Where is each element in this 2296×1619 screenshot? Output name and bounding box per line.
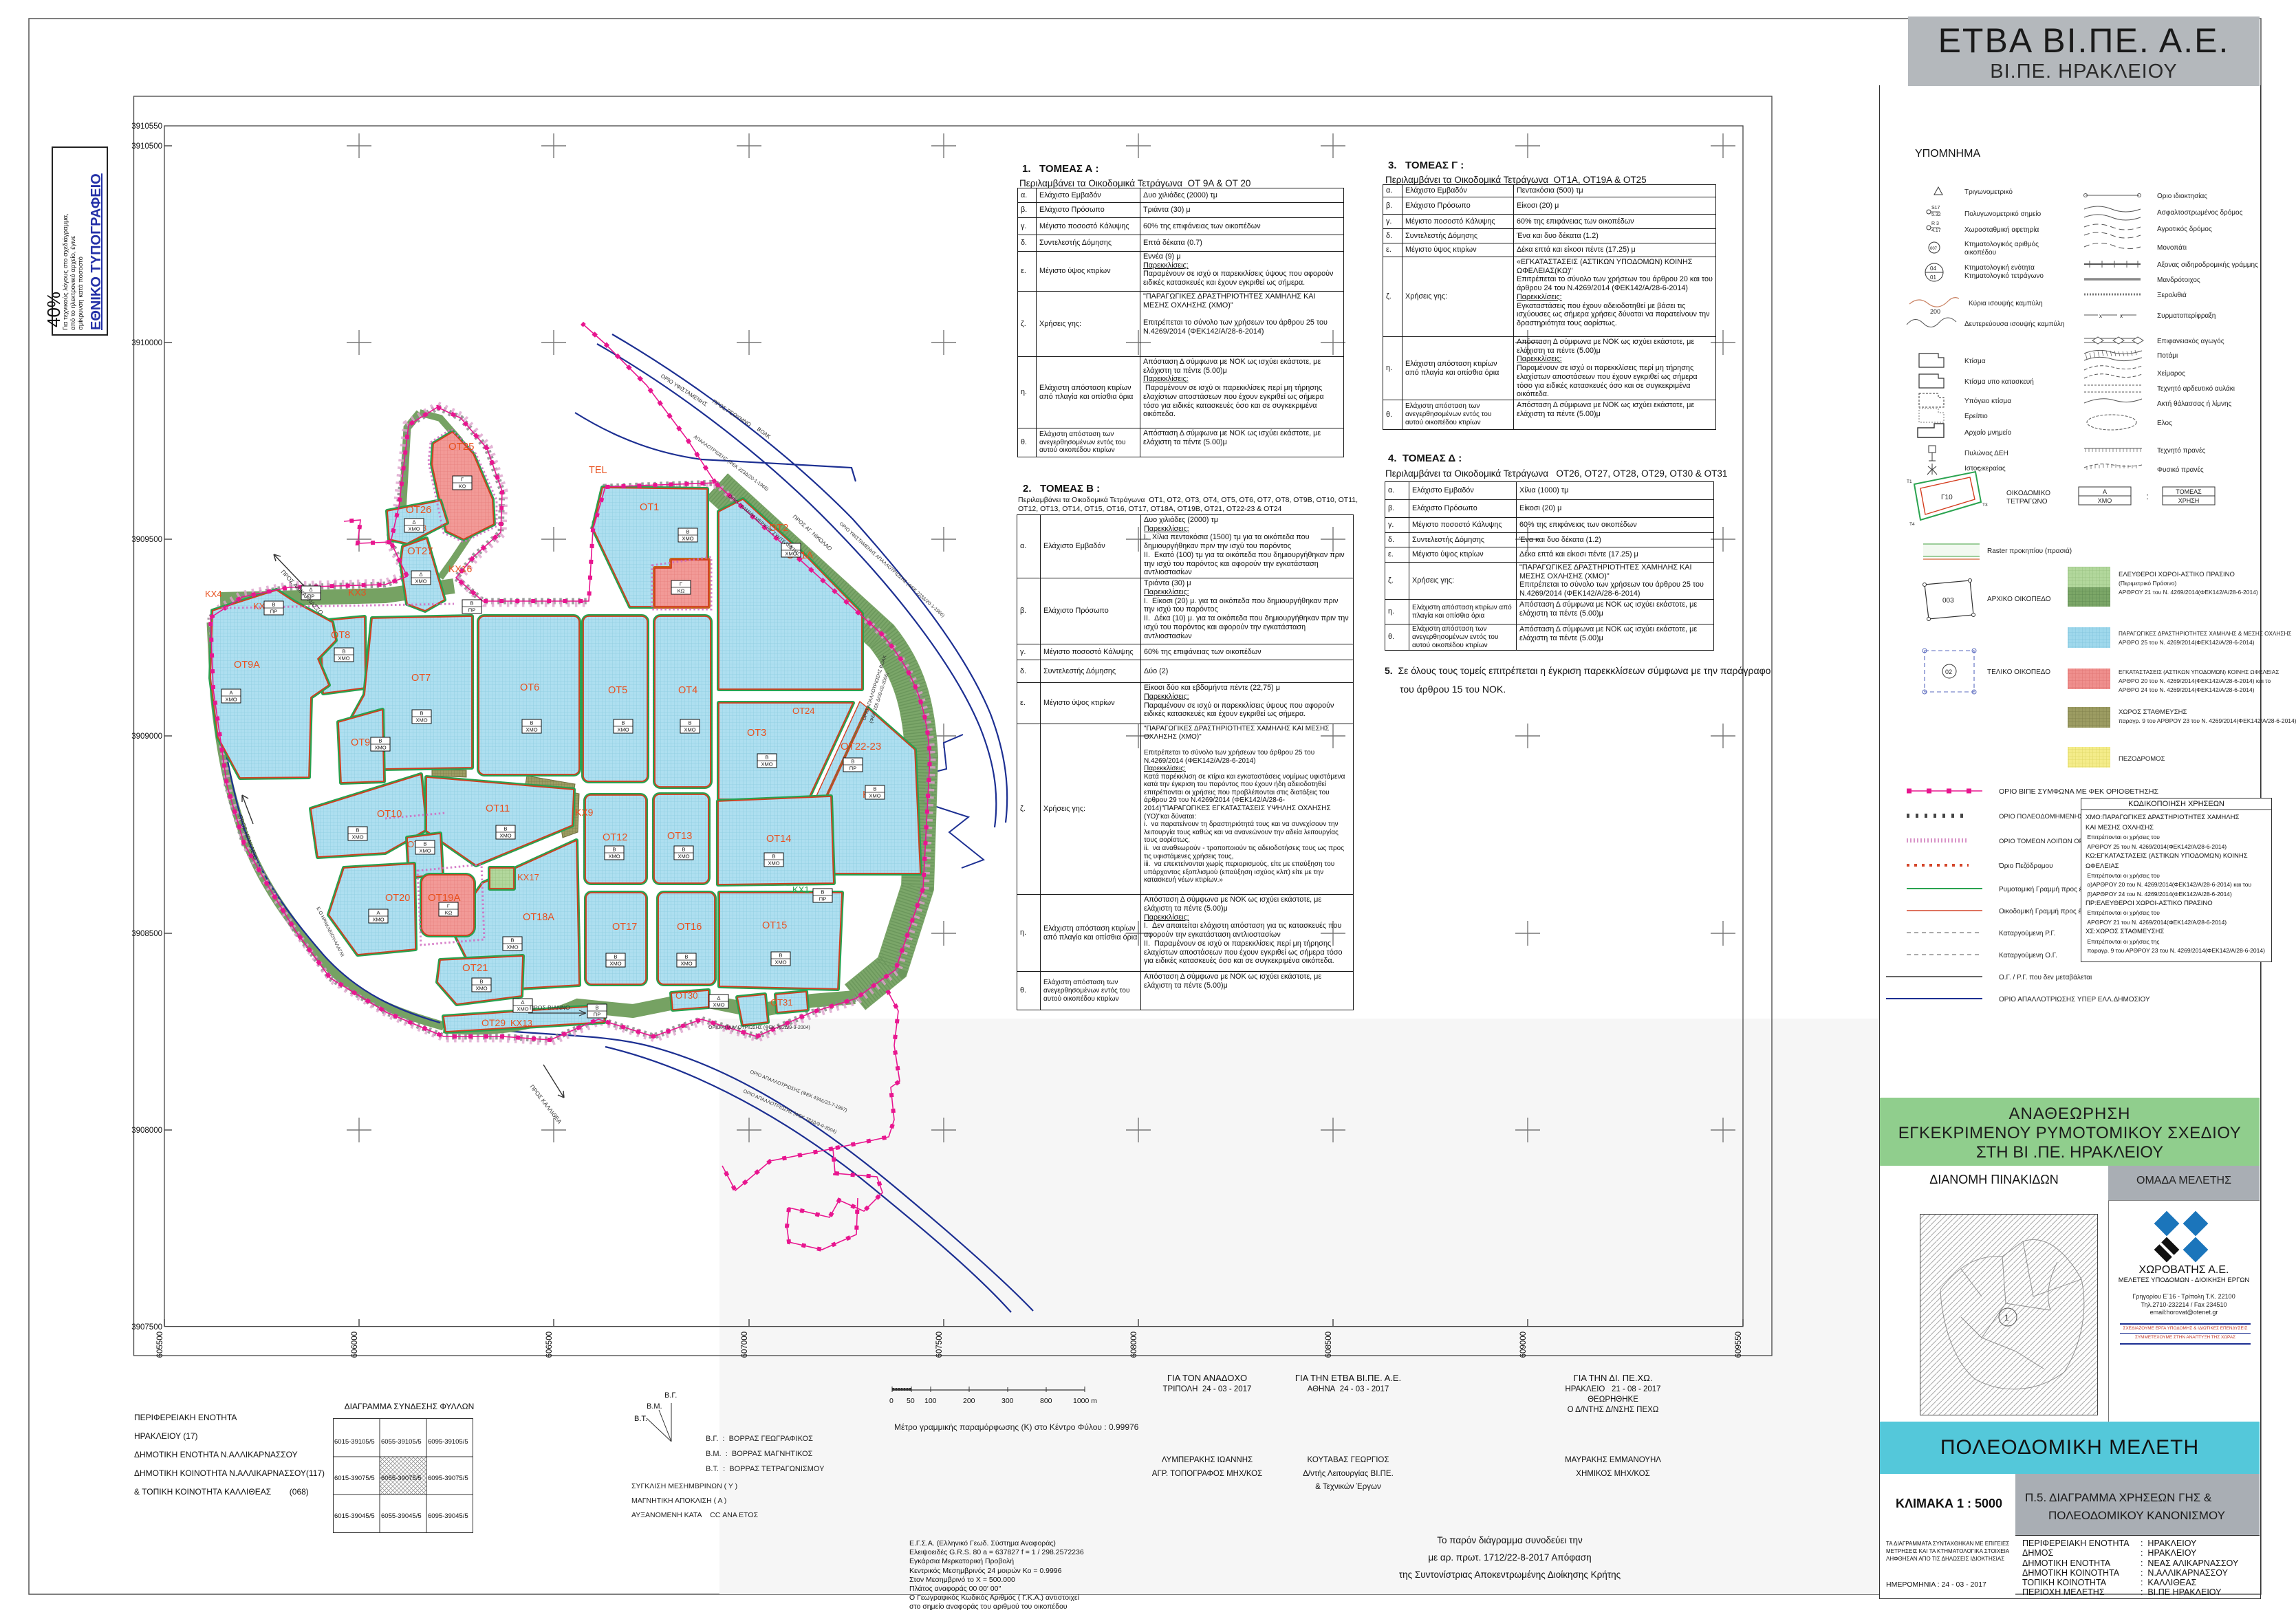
- svg-text:παραγρ. 9 του ΑΡΘΡΟΥ 23 του Ν.: παραγρ. 9 του ΑΡΘΡΟΥ 23 του Ν. 4269/2014…: [2119, 717, 2296, 724]
- svg-text:ΒΟΑΚ: ΒΟΑΚ: [756, 426, 772, 440]
- svg-text:Όριο Πεζόδρομου: Όριο Πεζόδρομου: [1998, 862, 2053, 870]
- svg-text:ΚΩ: ΚΩ: [459, 483, 466, 490]
- svg-text:KX9: KX9: [575, 807, 594, 818]
- svg-text:Δ: Δ: [717, 995, 720, 1001]
- svg-text:KX17: KX17: [517, 872, 539, 882]
- svg-text:5.32: 5.32: [1931, 213, 1941, 217]
- svg-text:Γ: Γ: [447, 903, 450, 909]
- svg-text:ΟΙΚΟΔΟΜΙΚΟ: ΟΙΚΟΔΟΜΙΚΟ: [2006, 490, 2050, 497]
- svg-text:OT25: OT25: [448, 441, 475, 453]
- svg-text:Β: Β: [530, 720, 533, 726]
- svg-text:OT18A: OT18A: [523, 912, 554, 923]
- svg-text:Β: Β: [851, 759, 854, 765]
- svg-text:1000 m: 1000 m: [1073, 1397, 1097, 1405]
- svg-text:ΧΜΟ: ΧΜΟ: [2098, 497, 2112, 504]
- svg-text:Β.Μ.: Β.Μ.: [647, 1402, 662, 1411]
- svg-text:Συρματοπερίφραξη: Συρματοπερίφραξη: [2157, 312, 2216, 320]
- svg-text:οικοπέδου: οικοπέδου: [1964, 248, 1996, 257]
- svg-text:100: 100: [924, 1397, 937, 1405]
- svg-text:6095-39045/5: 6095-39045/5: [428, 1512, 468, 1520]
- svg-text:01: 01: [1930, 274, 1936, 281]
- svg-text:6015-39045/5: 6015-39045/5: [334, 1512, 375, 1520]
- svg-text:ΕΓΚΑΤΑΣΤΑΣΕΙΣ (ΑΣΤΙΚΩΝ ΥΠΟΔΟΜΩ: ΕΓΚΑΤΑΣΤΑΣΕΙΣ (ΑΣΤΙΚΩΝ ΥΠΟΔΟΜΩΝ) ΚΟΙΝΗΣ …: [2119, 669, 2279, 675]
- svg-text:Α: Α: [2103, 488, 2107, 495]
- svg-text:Β: Β: [684, 954, 688, 960]
- svg-text:Κτηματολογική ενότητα: Κτηματολογική ενότητα: [1964, 263, 2035, 272]
- svg-text:ΑΡΘΡΟ 25 του Ν. 4269/2014(ΦΕΚ1: ΑΡΘΡΟ 25 του Ν. 4269/2014(ΦΕΚ142/Α/28-6-…: [2119, 639, 2255, 646]
- svg-text:Β: Β: [342, 649, 345, 655]
- svg-text:ΧΜΟ: ΧΜΟ: [526, 727, 537, 733]
- svg-text:ΟΡΙΟ ΥΦΙΣΤΑΜΕΝΗΣ: ΟΡΙΟ ΥΦΙΣΤΑΜΕΝΗΣ: [660, 373, 708, 407]
- svg-text:ΧΜΟ: ΧΜΟ: [609, 961, 621, 967]
- svg-text:OT22-23: OT22-23: [841, 741, 881, 752]
- svg-text:Ξερολιθιά: Ξερολιθιά: [2157, 291, 2187, 299]
- svg-text:OT8: OT8: [331, 630, 350, 641]
- svg-text:ΠΡ: ΠΡ: [819, 896, 826, 902]
- svg-text:KX4: KX4: [205, 589, 222, 599]
- svg-text:Β: Β: [821, 889, 824, 895]
- svg-text:ΧΜΟ: ΧΜΟ: [775, 959, 786, 966]
- svg-text:ΤΕΤΡΑΓΩΝΟ: ΤΕΤΡΑΓΩΝΟ: [2006, 498, 2048, 506]
- svg-text:Α: Α: [376, 910, 380, 916]
- svg-text:ΠΕΖΟΔΡΟΜΟΣ: ΠΕΖΟΔΡΟΜΟΣ: [2119, 755, 2165, 763]
- svg-text:KX16: KX16: [448, 563, 472, 574]
- svg-text:OT13: OT13: [667, 831, 692, 842]
- svg-text:OT31: OT31: [770, 997, 793, 1008]
- svg-text:ΚΩ: ΚΩ: [678, 588, 685, 594]
- svg-text:OT11: OT11: [486, 803, 510, 814]
- svg-text:Γ10: Γ10: [1941, 494, 1953, 501]
- svg-text:OT27: OT27: [407, 545, 433, 557]
- svg-text:Β: Β: [873, 786, 876, 792]
- svg-text:OT6: OT6: [520, 682, 539, 693]
- svg-text:Δ: Δ: [309, 587, 312, 593]
- svg-text:6055-39105/5: 6055-39105/5: [381, 1438, 422, 1446]
- svg-text:200: 200: [963, 1397, 975, 1405]
- svg-text:ΠΡ: ΠΡ: [270, 609, 277, 615]
- svg-text:Μονοπάτι: Μονοπάτι: [2157, 243, 2187, 252]
- svg-text:Β.Γ.: Β.Γ.: [664, 1391, 677, 1400]
- svg-text:Δ: Δ: [419, 572, 422, 578]
- svg-text:50: 50: [907, 1397, 915, 1405]
- svg-text:ΑΡΘΡΟ 20 του Ν. 4269/2014(ΦΕΚ1: ΑΡΘΡΟ 20 του Ν. 4269/2014(ΦΕΚ142/Α/28-6-…: [2119, 677, 2271, 684]
- svg-text:Β: Β: [470, 600, 473, 607]
- svg-text:OT20: OT20: [385, 893, 410, 904]
- svg-text:OT17: OT17: [612, 922, 637, 933]
- svg-text:04: 04: [1930, 265, 1936, 272]
- svg-text:ΧΜΟ: ΧΜΟ: [678, 854, 689, 860]
- svg-text:6095-39075/5: 6095-39075/5: [428, 1475, 468, 1482]
- svg-text:Raster προκηπίου (πρασιά): Raster προκηπίου (πρασιά): [1987, 547, 2072, 555]
- svg-text:Β: Β: [688, 720, 691, 726]
- svg-text:Δευτερεύουσα ισουψής καμπύλη: Δευτερεύουσα ισουψής καμπύλη: [1964, 320, 2064, 328]
- svg-text:ΧΜΟ: ΧΜΟ: [761, 761, 772, 768]
- svg-text:ΠΑΡΑΓΩΓΙΚΕΣ ΔΡΑΣΤΗΡΙΟΤΗΤΕΣ ΧΑΜ: ΠΑΡΑΓΩΓΙΚΕΣ ΔΡΑΣΤΗΡΙΟΤΗΤΕΣ ΧΑΜΗΛΗΣ & ΜΕΣ…: [2119, 631, 2291, 637]
- svg-text:ΧΡΗΣΗ: ΧΡΗΣΗ: [2178, 497, 2200, 504]
- svg-text:OT15: OT15: [762, 920, 787, 931]
- svg-text:Β: Β: [595, 1005, 598, 1011]
- svg-text:ΠΡ: ΠΡ: [594, 1012, 600, 1018]
- svg-text:ΧΜΟ: ΧΜΟ: [517, 1006, 528, 1012]
- svg-text:OT24: OT24: [792, 706, 815, 716]
- svg-text:Οριο ιδιοκτησίας: Οριο ιδιοκτησίας: [2157, 192, 2207, 200]
- svg-text:6015-39075/5: 6015-39075/5: [334, 1475, 375, 1482]
- svg-text:Ελος: Ελος: [2157, 420, 2172, 427]
- svg-text:ΧΜΟ: ΧΜΟ: [338, 655, 349, 662]
- svg-text:Φυσικό πρανές: Φυσικό πρανές: [2157, 466, 2204, 474]
- svg-text:OT4: OT4: [678, 685, 697, 696]
- svg-text:Β: Β: [614, 954, 617, 960]
- svg-text:ΕΛΕΥΘΕΡΟΙ ΧΩΡΟΙ-ΑΣΤΙΚΟ ΠΡΑΣΙΝΟ: ΕΛΕΥΘΕΡΟΙ ΧΩΡΟΙ-ΑΣΤΙΚΟ ΠΡΑΣΙΝΟ: [2119, 571, 2235, 578]
- svg-text:OT14: OT14: [766, 834, 791, 845]
- svg-text:OT19A: OT19A: [428, 892, 461, 904]
- svg-text:ΧΜΟ: ΧΜΟ: [869, 793, 880, 799]
- svg-text:OT26: OT26: [406, 504, 432, 516]
- svg-text:Αξονας σιδηροδρομικής γράμμης: Αξονας σιδηροδρομικής γράμμης: [2157, 261, 2258, 269]
- svg-text:Ιστος κεραίας: Ιστος κεραίας: [1964, 464, 2006, 472]
- svg-text:Β: Β: [510, 937, 514, 944]
- svg-text:Γ: Γ: [461, 477, 464, 483]
- svg-text:Ασφαλτοστρωμένος δρόμος: Ασφαλτοστρωμένος δρόμος: [2157, 208, 2243, 217]
- svg-text:ΠΡ: ΠΡ: [468, 607, 475, 613]
- svg-text:(Περιμετρικό Πράσινο): (Περιμετρικό Πράσινο): [2119, 580, 2176, 587]
- svg-text:ΧΜΟ: ΧΜΟ: [680, 961, 692, 967]
- svg-text:Τεχνητό αρδευτικό αυλάκι: Τεχνητό αρδευτικό αυλάκι: [2157, 384, 2235, 393]
- svg-text:Πυλώνας ΔΕΗ: Πυλώνας ΔΕΗ: [1964, 449, 2008, 457]
- svg-text:Υπόγειο κτίσμα: Υπόγειο κτίσμα: [1964, 397, 2011, 405]
- svg-text:Β: Β: [779, 953, 782, 959]
- svg-text:OT21: OT21: [462, 962, 488, 974]
- svg-text:ΧΜΟ: ΧΜΟ: [684, 727, 695, 733]
- svg-text:Β: Β: [479, 979, 483, 985]
- svg-text:ΧΜΟ: ΧΜΟ: [419, 848, 431, 854]
- svg-text:ΧΜΟ: ΧΜΟ: [475, 986, 487, 992]
- svg-text:Β.Τ.: Β.Τ.: [634, 1415, 647, 1423]
- svg-text:R 3: R 3: [1931, 221, 1939, 226]
- svg-text:Β: Β: [423, 841, 426, 847]
- svg-text:Δ: Δ: [412, 519, 415, 525]
- svg-text:OT16: OT16: [677, 922, 702, 933]
- svg-text:ΤΕΛΙΚΟ ΟΙΚΟΠΕΔΟ: ΤΕΛΙΚΟ ΟΙΚΟΠΕΔΟ: [1987, 669, 2050, 676]
- svg-text:OT1: OT1: [640, 502, 659, 513]
- svg-text:ΧΜΟ: ΧΜΟ: [351, 834, 363, 840]
- svg-text:T1: T1: [1907, 479, 1912, 484]
- svg-text:ΧΜΟ: ΧΜΟ: [374, 745, 386, 751]
- svg-text:003: 003: [1942, 597, 1954, 605]
- svg-text:OT3: OT3: [747, 728, 766, 739]
- svg-text:ΧΩΡΟΣ ΣΤΑΘΜΕΥΣΗΣ: ΧΩΡΟΣ ΣΤΑΘΜΕΥΣΗΣ: [2119, 708, 2187, 716]
- svg-text:Ποτάμι: Ποτάμι: [2157, 351, 2178, 360]
- svg-text:Β: Β: [686, 529, 689, 535]
- svg-text:x: x: [2120, 313, 2123, 319]
- svg-text:6015-39105/5: 6015-39105/5: [334, 1438, 375, 1446]
- svg-text:1: 1: [2004, 1313, 2009, 1323]
- svg-text:OT29: OT29: [481, 1017, 506, 1028]
- svg-text:ΧΜΟ: ΧΜΟ: [372, 917, 384, 923]
- svg-text:Β: Β: [772, 854, 775, 860]
- svg-text:Δ: Δ: [521, 999, 524, 1006]
- svg-text:ΧΜΟ: ΧΜΟ: [408, 526, 420, 532]
- svg-text:300: 300: [1001, 1397, 1014, 1405]
- svg-text:x: x: [2099, 313, 2102, 319]
- svg-text:Χωροσταθμική αφετηρία: Χωροσταθμική αφετηρία: [1964, 226, 2039, 234]
- svg-text:Ακτή θάλασσας ή λίμνης: Ακτή θάλασσας ή λίμνης: [2157, 400, 2232, 408]
- svg-text:ΟΡΙΟ ΒΙΠΕ ΣΥΜΦΩΝΑ ΜΕ ΦΕΚ ΟΡΙΟΘ: ΟΡΙΟ ΒΙΠΕ ΣΥΜΦΩΝΑ ΜΕ ΦΕΚ ΟΡΙΟΘΕΤΗΣΗΣ: [1999, 787, 2158, 796]
- svg-text:ΧΜΟ: ΧΜΟ: [415, 717, 427, 724]
- svg-text:Β: Β: [272, 602, 275, 608]
- svg-text:Κτίσμα υπο κατασκευή: Κτίσμα υπο κατασκευή: [1964, 378, 2034, 386]
- svg-text:ΑΡΘΡΟΥ 21 του Ν. 4269/2014(ΦΕΚ: ΑΡΘΡΟΥ 21 του Ν. 4269/2014(ΦΕΚ142/Α/28-6…: [2119, 589, 2258, 596]
- svg-text:ΧΜΟ: ΧΜΟ: [506, 944, 518, 950]
- svg-text:Χείμαρος: Χείμαρος: [2157, 369, 2185, 378]
- svg-text:OT10: OT10: [377, 809, 402, 820]
- svg-text:ΠΡΟΣ ΒΙΑΝΝΟ: ΠΡΟΣ ΒΙΑΝΝΟ: [530, 1004, 570, 1011]
- svg-text:T3: T3: [1982, 503, 1988, 508]
- svg-text:KX3: KX3: [348, 587, 367, 598]
- svg-text:ΠΡΟΣ ΚΑΛΛΙΘΕΑ: ΠΡΟΣ ΚΑΛΛΙΘΕΑ: [528, 1083, 563, 1125]
- svg-text:T4: T4: [1909, 522, 1915, 527]
- svg-text::: :: [2146, 491, 2149, 501]
- svg-text:ΚΩ: ΚΩ: [445, 910, 453, 916]
- svg-text:ΧΜΟ: ΧΜΟ: [682, 536, 693, 542]
- svg-text:T2: T2: [1977, 467, 1982, 472]
- svg-text:ΤΟΜΕΑΣ: ΤΟΜΕΑΣ: [2176, 488, 2202, 495]
- svg-text:6055-39045/5: 6055-39045/5: [381, 1512, 422, 1520]
- svg-text:Β: Β: [765, 754, 768, 761]
- svg-text:OT7: OT7: [411, 673, 431, 684]
- svg-text:6055-39075/5: 6055-39075/5: [381, 1475, 422, 1482]
- svg-text:Κτηματολογικός αριθμός: Κτηματολογικός αριθμός: [1964, 240, 2039, 248]
- svg-text:Κτίσμα: Κτίσμα: [1964, 357, 1986, 365]
- svg-text:ΟΡΙΟ ΑΠΑΛΛΟΤΡΙΩΣΗΣ ΥΠΕΡ ΕΛΛ.ΔΗ: ΟΡΙΟ ΑΠΑΛΛΟΤΡΙΩΣΗΣ ΥΠΕΡ ΕΛΛ.ΔΗΜΟΣΙΟΥ: [1999, 996, 2150, 1003]
- svg-text:02: 02: [1945, 669, 1952, 675]
- svg-text:ΑΡΧΙΚΟ ΟΙΚΟΠΕΔΟ: ΑΡΧΙΚΟ ΟΙΚΟΠΕΔΟ: [1987, 596, 2051, 603]
- svg-text:200: 200: [1930, 308, 1940, 315]
- svg-text:ΟΡΙΟ ΑΠΑΛΛΟΤΡΙΩΣΗΣ (ΦΕΚ 434Δ/2: ΟΡΙΟ ΑΠΑΛΛΟΤΡΙΩΣΗΣ (ΦΕΚ 434Δ/23-7-1997): [749, 1069, 847, 1113]
- svg-text:ΧΜΟ: ΧΜΟ: [617, 727, 629, 733]
- svg-text:Μανδρότοιχος: Μανδρότοιχος: [2157, 276, 2200, 284]
- svg-text:ΧΜΟ: ΧΜΟ: [499, 833, 511, 839]
- svg-text:S17: S17: [1931, 206, 1940, 210]
- svg-text:OT9A: OT9A: [234, 660, 260, 671]
- svg-text:ΧΜΟ: ΧΜΟ: [225, 697, 237, 703]
- svg-text:Τριγωνομετρικό: Τριγωνομετρικό: [1964, 188, 2013, 196]
- svg-text:KX13: KX13: [510, 1018, 532, 1028]
- svg-text:Β: Β: [621, 720, 625, 726]
- svg-text:Γ: Γ: [680, 581, 682, 587]
- svg-text:Καταργούμενη Ο.Γ.: Καταργούμενη Ο.Γ.: [1999, 951, 2057, 959]
- svg-text:OT30: OT30: [675, 990, 698, 1001]
- svg-text:ΧΜΟ: ΧΜΟ: [768, 860, 779, 867]
- svg-text:Αγροτικός δρόμος: Αγροτικός δρόμος: [2157, 225, 2212, 233]
- svg-text:ΠΡ: ΠΡ: [849, 765, 856, 772]
- svg-text:6095-39105/5: 6095-39105/5: [428, 1438, 468, 1446]
- svg-text:ΧΜΟ: ΧΜΟ: [608, 854, 620, 860]
- svg-text:Β: Β: [682, 847, 685, 853]
- svg-text:ΑΡΘΡΟ 24 του Ν. 4269/2014(ΦΕΚ1: ΑΡΘΡΟ 24 του Ν. 4269/2014(ΦΕΚ142/Α/28-6-…: [2119, 686, 2255, 693]
- svg-text:Ερείπιο: Ερείπιο: [1964, 412, 1988, 420]
- svg-text:Κύρια ισουψής καμπύλη: Κύρια ισουψής καμπύλη: [1969, 299, 2043, 307]
- svg-text:TEL: TEL: [589, 465, 607, 476]
- svg-text:4.17: 4.17: [1931, 228, 1941, 233]
- svg-text:OT12: OT12: [603, 832, 627, 843]
- svg-text:0: 0: [889, 1397, 894, 1405]
- svg-text:Αρχαίο μνημείο: Αρχαίο μνημείο: [1964, 428, 2011, 437]
- svg-text:Ο.Γ. / Ρ.Γ. που δεν μεταβάλετα: Ο.Γ. / Ρ.Γ. που δεν μεταβάλεται: [1999, 973, 2092, 981]
- svg-text:Β: Β: [378, 738, 382, 744]
- svg-text:Α: Α: [229, 690, 232, 696]
- svg-text:Β: Β: [612, 847, 616, 853]
- svg-text:Β: Β: [503, 826, 507, 832]
- svg-text:Β: Β: [356, 827, 359, 834]
- svg-text:Επιφανειακός αγωγός: Επιφανειακός αγωγός: [2157, 337, 2224, 345]
- svg-text:Καταργούμενη Ρ.Γ.: Καταργούμενη Ρ.Γ.: [1999, 929, 2056, 937]
- svg-text:007: 007: [1930, 247, 1938, 251]
- svg-text:KX1: KX1: [792, 884, 810, 895]
- svg-text:OT5: OT5: [608, 685, 627, 696]
- svg-text:Πολυγωνομετρικό σημείο: Πολυγωνομετρικό σημείο: [1964, 210, 2042, 218]
- svg-text:ΧΜΟ: ΧΜΟ: [713, 1002, 724, 1008]
- svg-text:ΟΡΙΟ ΑΠΑΛΛΟΤΡΙΩΣΗΣ (ΦΕΚ 782Δ/9: ΟΡΙΟ ΑΠΑΛΛΟΤΡΙΩΣΗΣ (ΦΕΚ 782Δ/9-9-2004): [708, 1025, 810, 1030]
- svg-text:Β: Β: [420, 710, 423, 717]
- svg-text:Τεχνητό πρανές: Τεχνητό πρανές: [2157, 446, 2205, 455]
- svg-text:Κτηματολογικό τετράγωνο: Κτηματολογικό τετράγωνο: [1964, 272, 2044, 280]
- svg-text:ΧΜΟ: ΧΜΟ: [415, 578, 426, 585]
- svg-text:800: 800: [1040, 1397, 1052, 1405]
